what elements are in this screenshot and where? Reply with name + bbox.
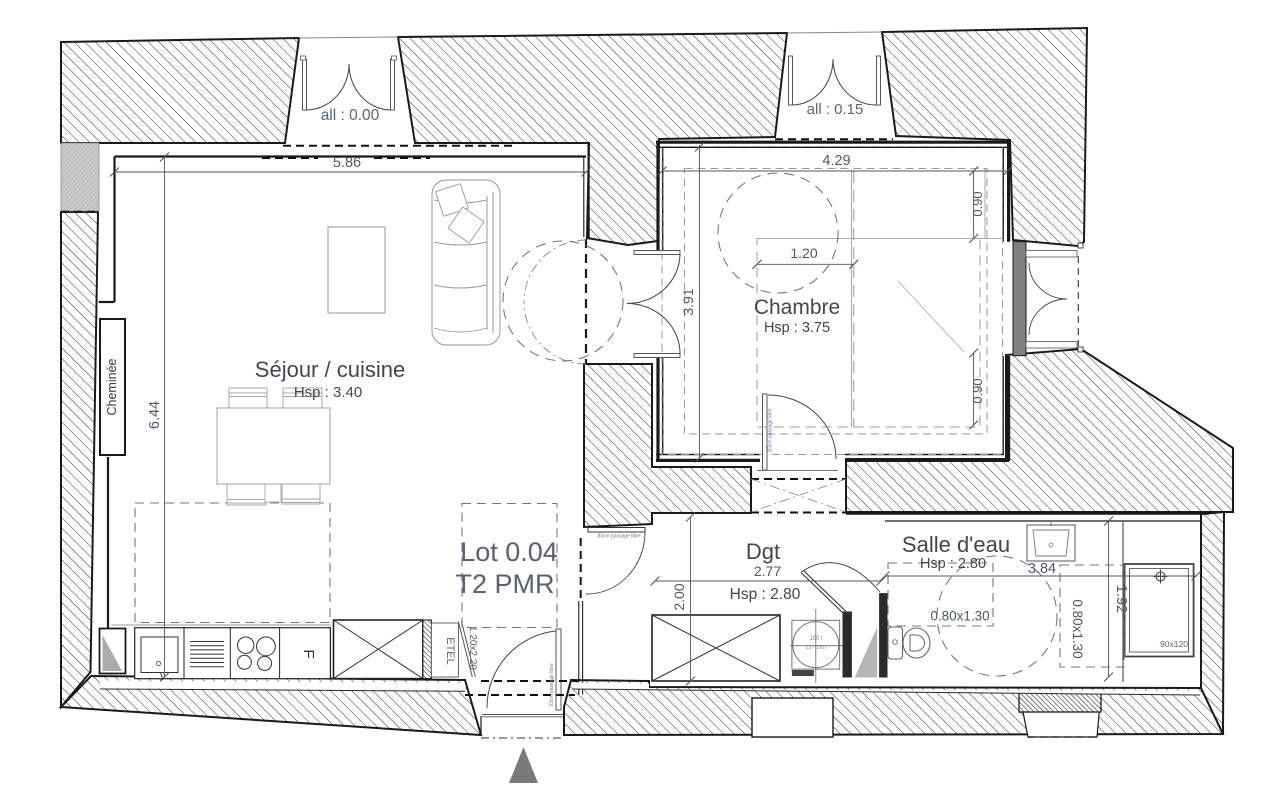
svg-text:3.91: 3.91: [680, 288, 696, 315]
svg-text:13 - 150 l: 13 - 150 l: [806, 645, 827, 651]
svg-text:Séjour / cuisine: Séjour / cuisine: [255, 357, 405, 382]
svg-text:F: F: [300, 649, 317, 658]
svg-text:Lot 0.04: Lot 0.04: [460, 537, 558, 567]
svg-text:4.29: 4.29: [822, 153, 850, 169]
svg-text:2.77: 2.77: [754, 563, 781, 579]
svg-text:90x120: 90x120: [1160, 639, 1188, 649]
svg-text:1.92: 1.92: [1113, 585, 1129, 613]
svg-text:ETEL: ETEL: [444, 637, 456, 665]
svg-text:3.84: 3.84: [1028, 561, 1056, 577]
svg-text:1.20: 1.20: [790, 245, 817, 261]
svg-text:Hsp : 3.75: Hsp : 3.75: [764, 320, 830, 336]
svg-text:2.00: 2.00: [671, 583, 687, 610]
svg-text:0.80x1.30: 0.80x1.30: [1070, 599, 1085, 658]
svg-text:Chambre: Chambre: [754, 296, 840, 319]
svg-text:1.20x2.20: 1.20x2.20: [467, 626, 478, 670]
svg-text:Hsp : 2.80: Hsp : 2.80: [920, 556, 986, 572]
svg-text:Salle d'eau: Salle d'eau: [902, 532, 1010, 557]
svg-text:6.44: 6.44: [147, 401, 163, 429]
svg-text:0.90: 0.90: [970, 191, 985, 216]
svg-text:0.80x1.30: 0.80x1.30: [930, 609, 989, 624]
svg-text:Dgt: Dgt: [746, 539, 780, 564]
svg-text:all : 0.15: all : 0.15: [807, 101, 864, 118]
svg-text:Hsp : 3.40: Hsp : 3.40: [294, 384, 362, 401]
svg-text:Hsp : 2.80: Hsp : 2.80: [730, 586, 801, 603]
svg-text:T2 PMR: T2 PMR: [455, 569, 554, 599]
svg-text:Cheminée: Cheminée: [105, 358, 119, 415]
svg-text:0.90: 0.90: [970, 378, 985, 403]
svg-text:5.86: 5.86: [333, 155, 361, 171]
svg-text:93cm passage libre: 93cm passage libre: [549, 663, 555, 707]
svg-text:150 l: 150 l: [809, 636, 822, 642]
svg-text:83cm passage libre: 83cm passage libre: [768, 408, 774, 452]
svg-text:83cm passage libre: 83cm passage libre: [597, 534, 641, 540]
svg-text:all : 0.00: all : 0.00: [321, 107, 380, 124]
